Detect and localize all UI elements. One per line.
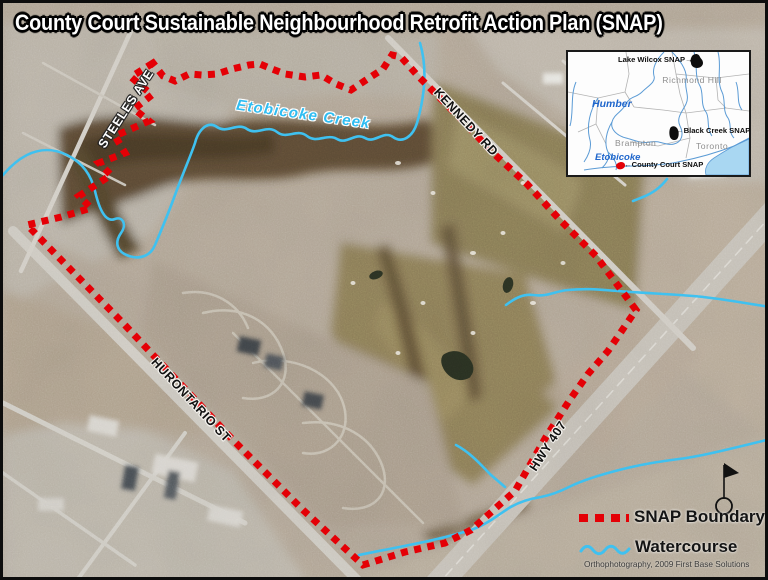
inset-label-brampton: Brampton [615, 139, 656, 148]
inset-label-lake-wilcox-snap: Lake Wilcox SNAP→ [618, 56, 693, 64]
attribution-text: Orthophotography, 2009 First Base Soluti… [584, 559, 749, 569]
inset-label-county-court-snap: ←County Court SNAP [624, 161, 703, 169]
inset-label-humber: Humber [592, 99, 632, 111]
arrow-left-icon: ← [676, 126, 684, 135]
inset-label-richmond-hill: Richmond Hill [660, 76, 724, 85]
legend-label-watercourse: Watercourse [635, 537, 737, 557]
inset-locator-map: Lake Wilcox SNAP→ Richmond Hill Humber ←… [566, 50, 751, 177]
arrow-left-icon: ← [624, 160, 632, 169]
map-title: County Court Sustainable Neighbourhood R… [15, 10, 675, 36]
map-frame: County Court Sustainable Neighbourhood R… [0, 0, 768, 580]
inset-label-toronto: Toronto [696, 142, 728, 151]
legend-label-snap-boundary: SNAP Boundary [634, 507, 765, 527]
legend-boundary-symbol [579, 512, 629, 524]
inset-label-black-creek-snap: ←Black Creek SNAP [676, 127, 750, 135]
legend-watercourse-symbol [579, 542, 631, 558]
arrow-right-icon: → [685, 55, 693, 64]
